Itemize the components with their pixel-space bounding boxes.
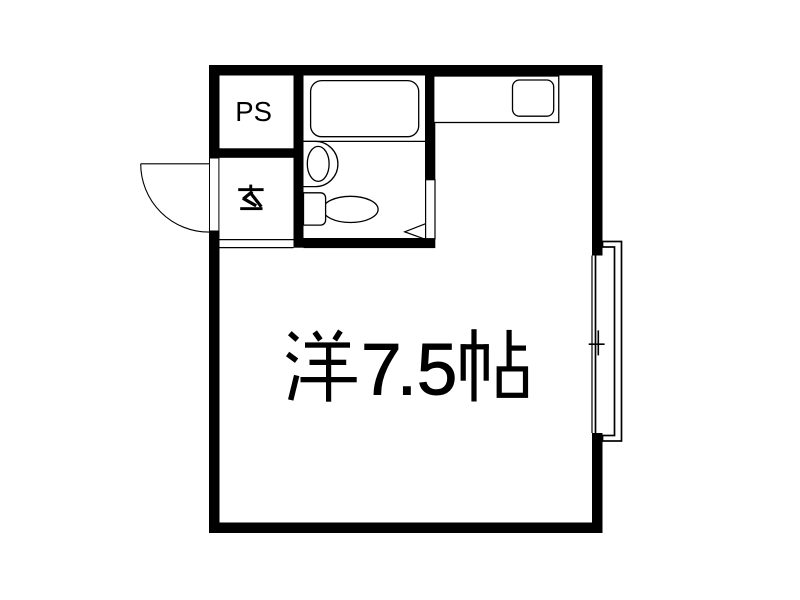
- svg-text:7.5: 7.5: [361, 330, 457, 411]
- svg-text:PS: PS: [235, 96, 272, 127]
